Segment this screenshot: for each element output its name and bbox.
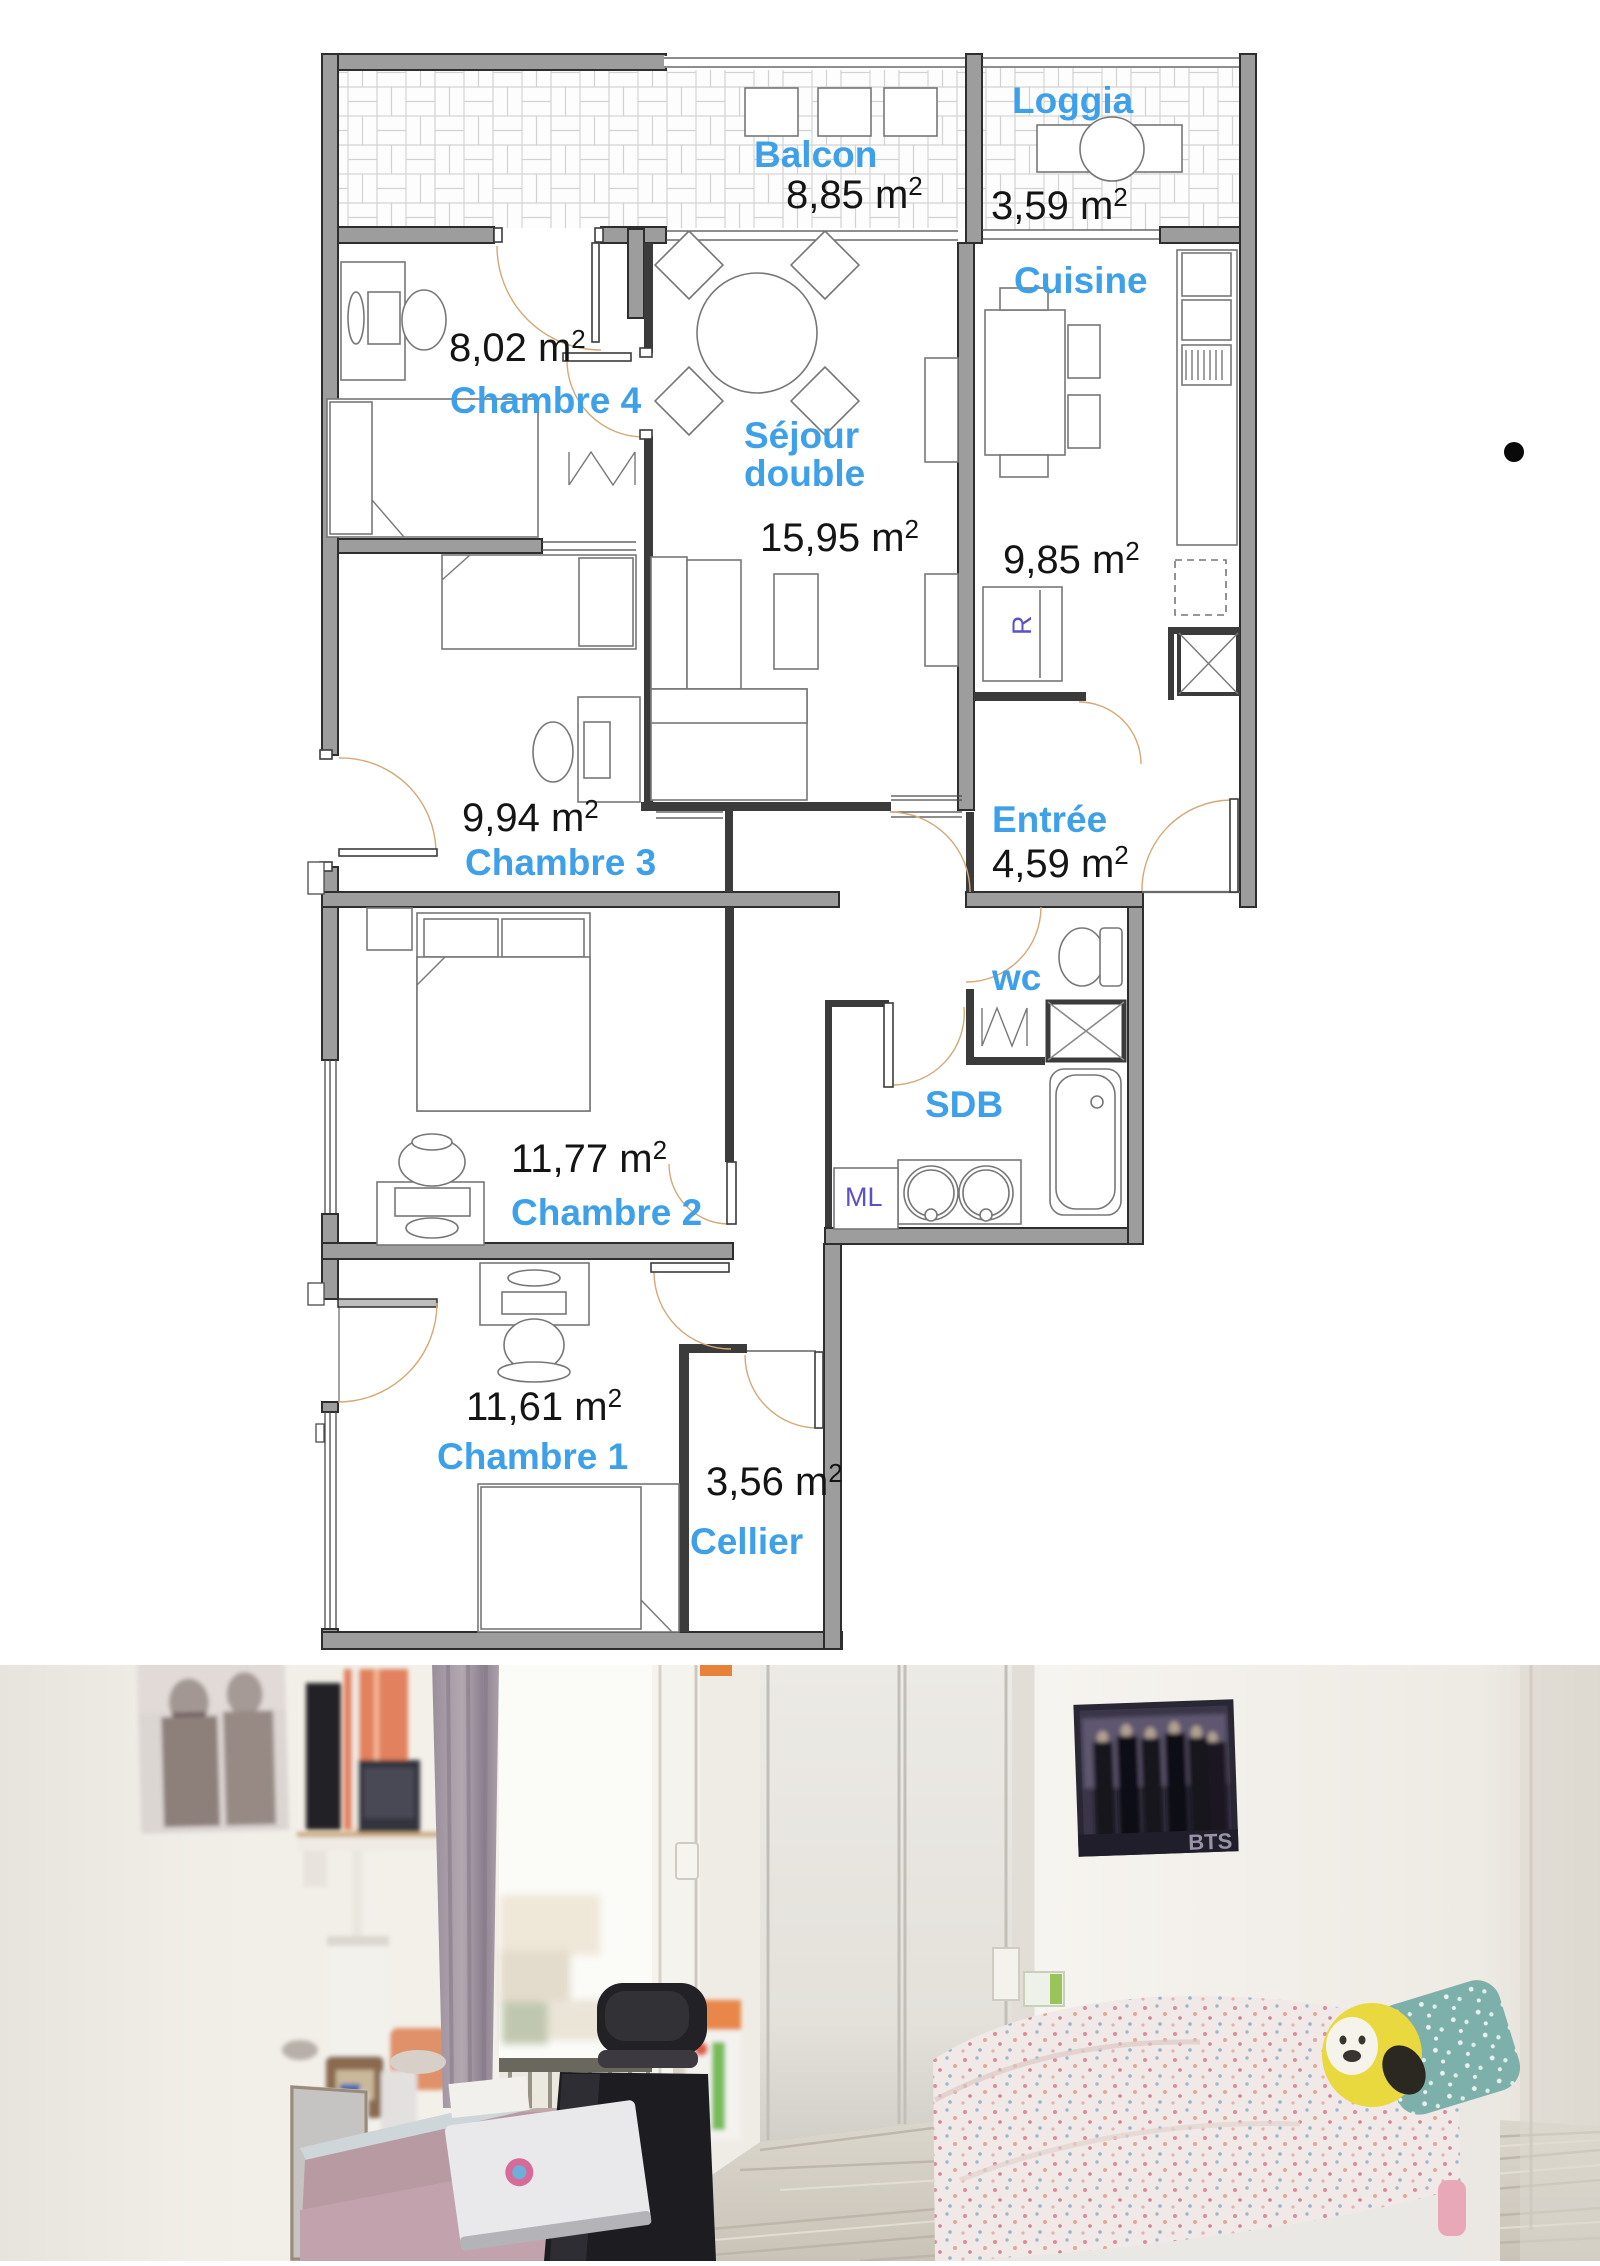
svg-text:double: double bbox=[744, 453, 865, 494]
svg-text:ML: ML bbox=[845, 1182, 883, 1212]
svg-text:Séjour: Séjour bbox=[744, 415, 859, 456]
svg-text:Cuisine: Cuisine bbox=[1014, 260, 1148, 301]
svg-text:Chambre 2: Chambre 2 bbox=[511, 1192, 702, 1233]
svg-text:15,95 m2: 15,95 m2 bbox=[760, 514, 919, 560]
svg-text:Chambre 3: Chambre 3 bbox=[465, 842, 656, 883]
svg-text:8,02 m2: 8,02 m2 bbox=[449, 324, 586, 370]
svg-text:SDB: SDB bbox=[925, 1084, 1003, 1125]
svg-text:Balcon: Balcon bbox=[754, 134, 877, 175]
svg-text:11,77 m2: 11,77 m2 bbox=[511, 1135, 667, 1181]
svg-text:Entrée: Entrée bbox=[992, 799, 1107, 840]
svg-text:9,85 m2: 9,85 m2 bbox=[1003, 536, 1140, 582]
svg-text:Chambre 4: Chambre 4 bbox=[450, 380, 642, 421]
svg-text:Chambre 1: Chambre 1 bbox=[437, 1436, 628, 1477]
svg-text:wc: wc bbox=[991, 957, 1041, 998]
svg-text:3,56 m2: 3,56 m2 bbox=[706, 1458, 843, 1504]
svg-text:Cellier: Cellier bbox=[690, 1521, 803, 1562]
svg-text:BTS: BTS bbox=[1188, 1828, 1233, 1855]
svg-text:8,85 m2: 8,85 m2 bbox=[786, 171, 923, 217]
svg-text:4,59 m2: 4,59 m2 bbox=[992, 840, 1129, 886]
svg-text:Loggia: Loggia bbox=[1012, 80, 1134, 121]
svg-text:9,94 m2: 9,94 m2 bbox=[462, 794, 599, 840]
svg-text:3,59 m2: 3,59 m2 bbox=[991, 182, 1128, 228]
svg-text:R: R bbox=[1007, 616, 1037, 636]
svg-text:11,61 m2: 11,61 m2 bbox=[466, 1383, 622, 1429]
